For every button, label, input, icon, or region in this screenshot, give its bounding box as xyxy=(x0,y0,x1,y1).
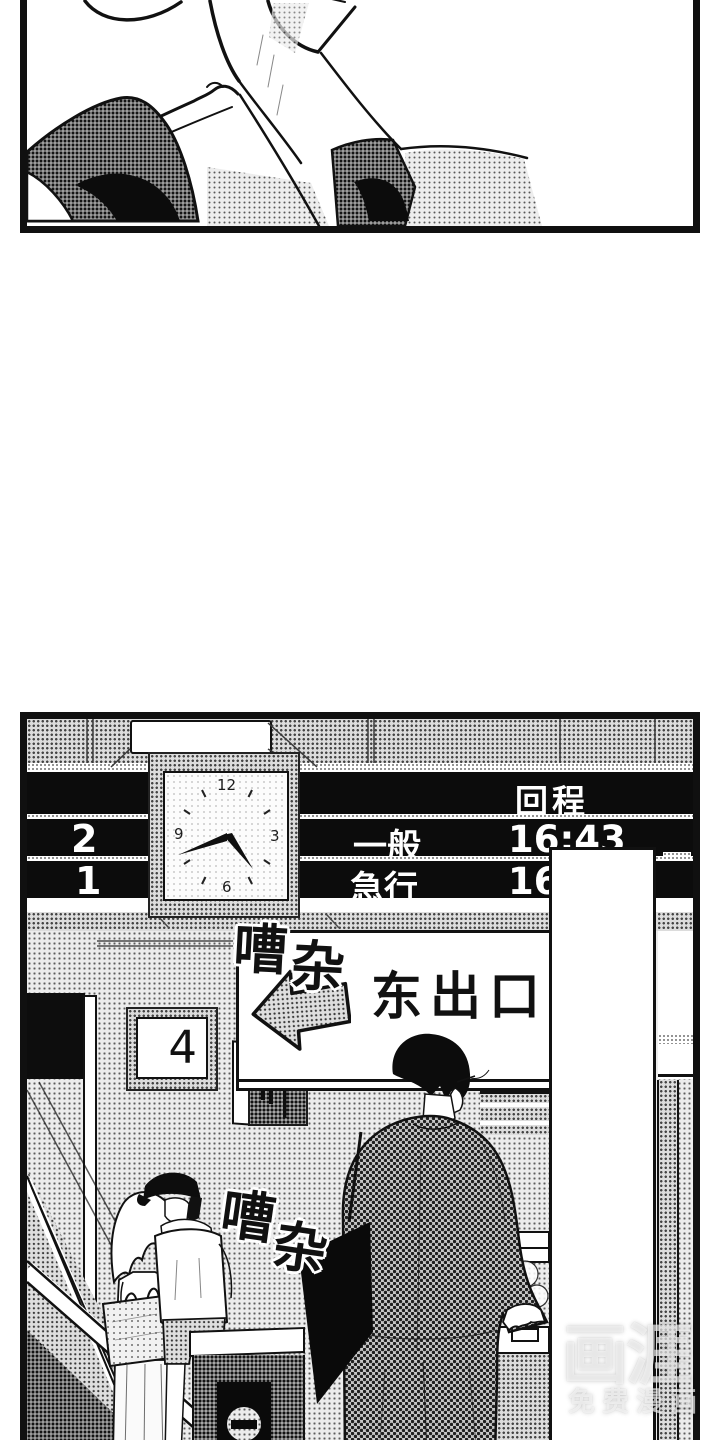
clock-numeral-3: 3 xyxy=(270,827,280,845)
watermark-tagline: 免费漫画 xyxy=(568,1380,704,1419)
clock-numeral-9: 9 xyxy=(174,825,184,843)
comic-page: 回程 2 一般 16:43 1 急行 16 xyxy=(0,0,720,1440)
ticket-gate-left-top xyxy=(189,1327,305,1357)
sfx-noise-2-char-2: 杂 xyxy=(270,1219,331,1280)
ticket-gate-left-body xyxy=(192,1355,305,1440)
clock-frame: 12 3 6 9 xyxy=(148,752,300,918)
no-entry-bar xyxy=(231,1420,257,1429)
panel-1-artwork xyxy=(27,0,693,226)
gate-screen xyxy=(217,1382,271,1440)
clock-face: 12 3 6 9 xyxy=(163,771,289,901)
clock-numeral-6: 6 xyxy=(222,878,232,896)
exit-sign-label: 东出口 xyxy=(371,955,548,1029)
sfx-noise-1-char-1: 嘈 xyxy=(232,922,289,979)
clock-numeral-12: 12 xyxy=(217,776,236,794)
sfx-noise-1-char-2: 杂 xyxy=(289,939,346,996)
panel-1-closeup xyxy=(20,0,700,233)
no-entry-icon xyxy=(227,1407,261,1440)
sfx-noise-2-char-1: 嘈 xyxy=(217,1187,278,1248)
